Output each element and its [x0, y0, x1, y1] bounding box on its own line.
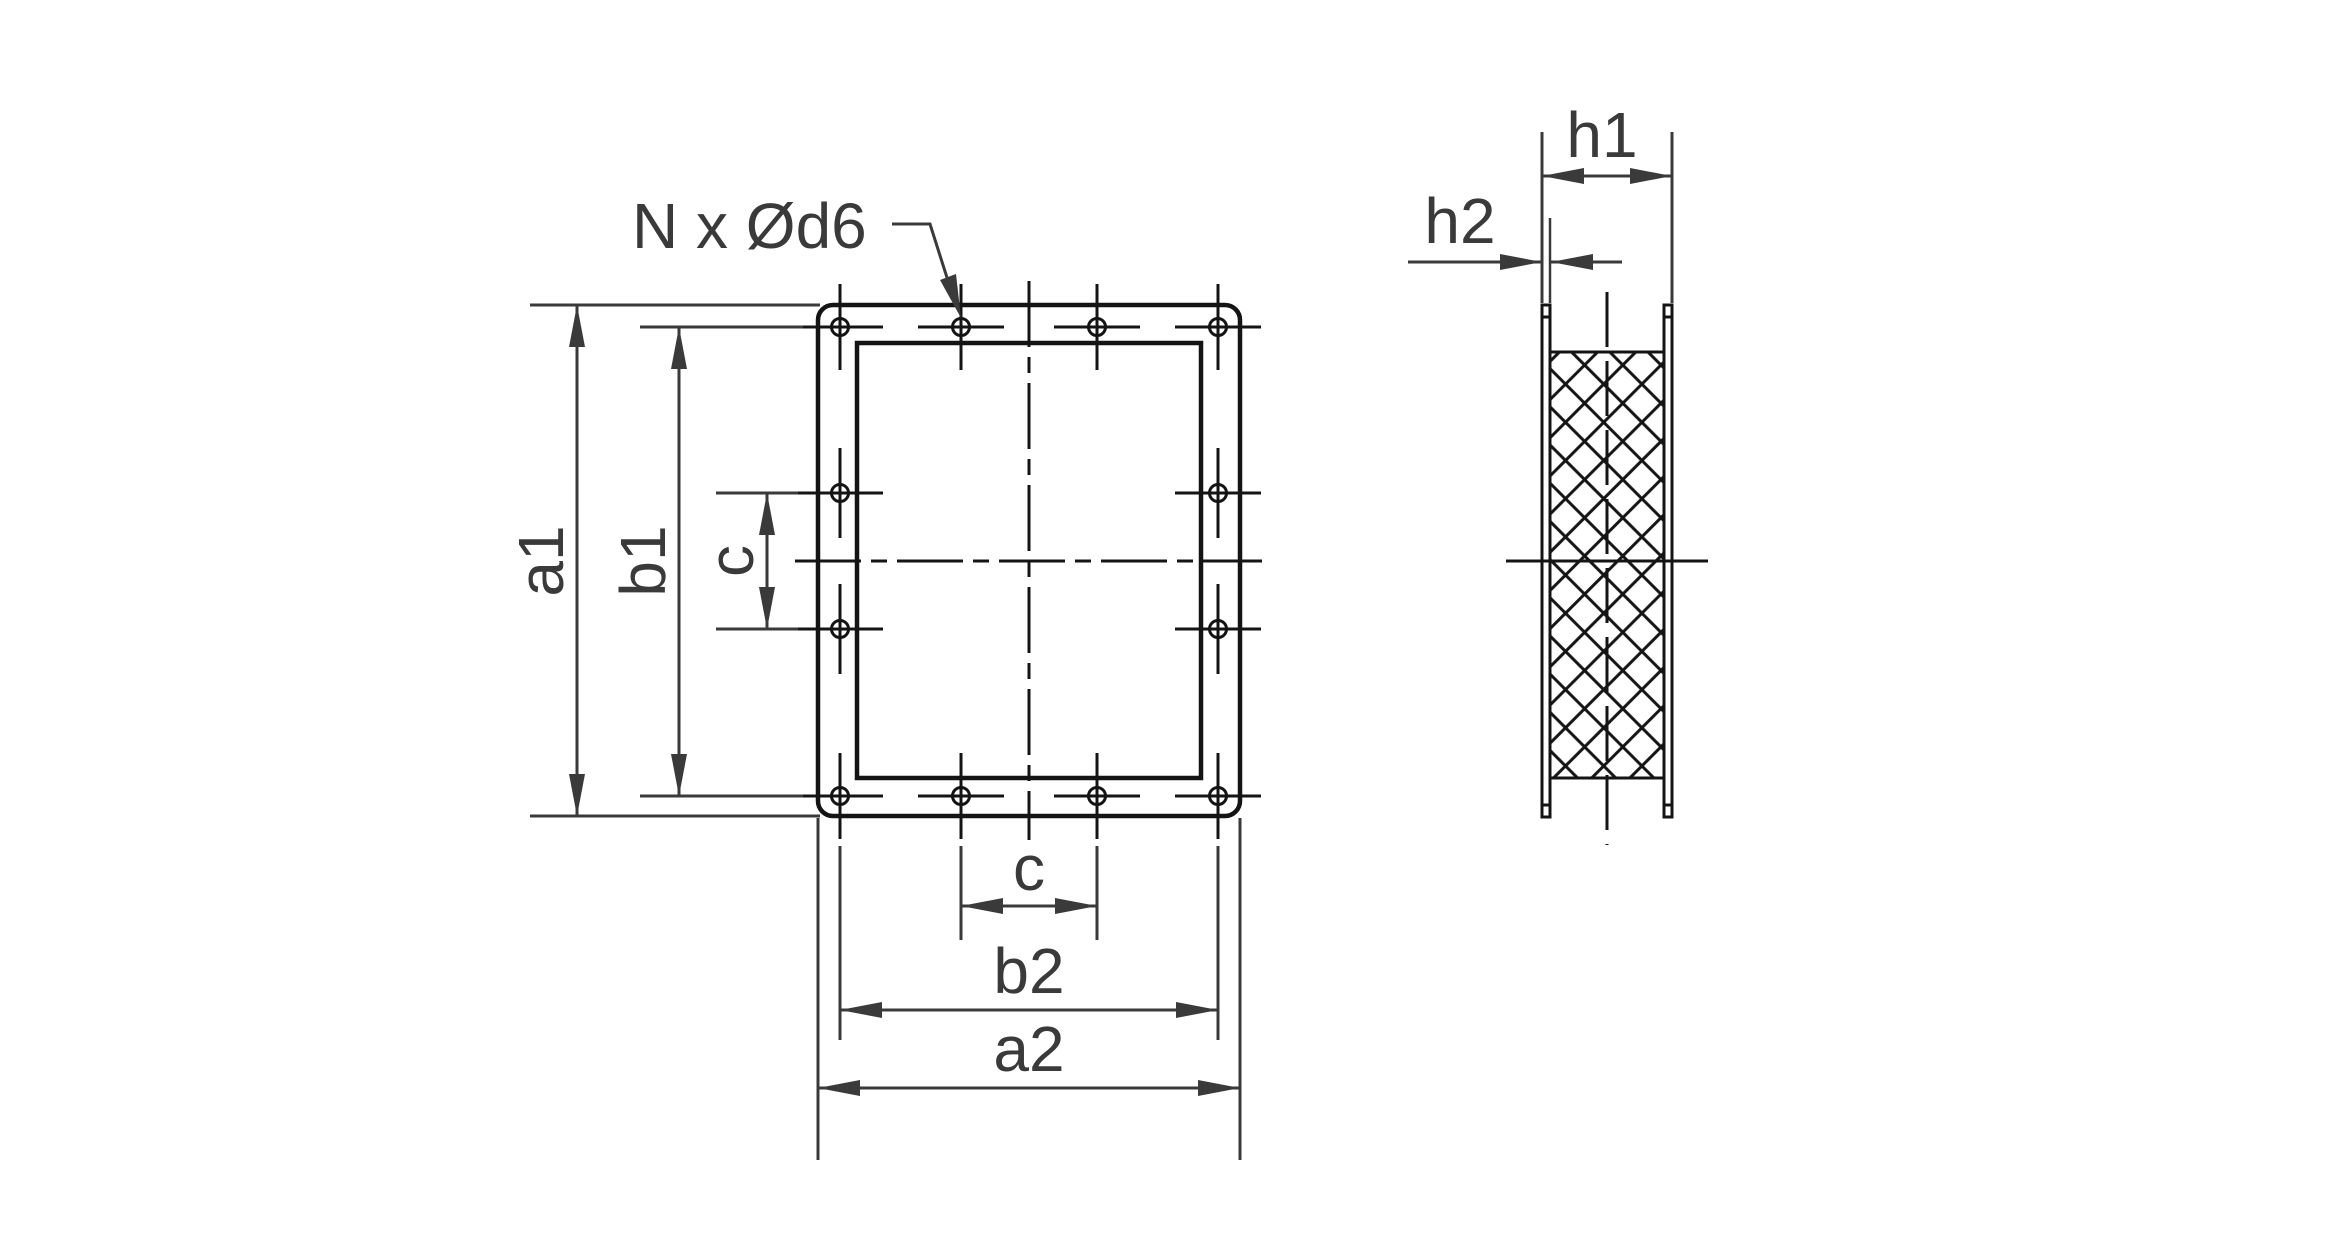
dim-h2-arrow-left — [1500, 254, 1542, 270]
front-view-dimensions: a1 b1 c c b2 a2 — [505, 305, 1240, 1160]
dim-a2-label: a2 — [993, 1013, 1064, 1085]
hole-note-leader-arrowhead — [940, 274, 961, 318]
side-view-dimensions: h1 h2 — [1408, 99, 1672, 303]
drawing-sheet: N x Ød6 a1 b1 c c b2 — [0, 0, 2334, 1234]
dim-b1-label: b1 — [607, 525, 679, 596]
hole-note-leader-line — [892, 224, 956, 306]
dim-b2-arrow-left — [840, 1002, 882, 1018]
dim-h1-label: h1 — [1566, 99, 1637, 171]
hole-note-label: N x Ød6 — [632, 190, 867, 262]
dim-a1-arrow-bottom — [569, 774, 585, 816]
front-view: N x Ød6 — [632, 190, 1262, 840]
dim-b2-arrow-right — [1176, 1002, 1218, 1018]
dim-a2-arrow-left — [818, 1080, 860, 1096]
dim-b1-arrow-top — [671, 327, 687, 369]
dim-a1-label: a1 — [505, 525, 577, 596]
dim-c-horizontal-arrow-left — [961, 898, 1003, 914]
dim-h2-arrow-right — [1551, 254, 1593, 270]
engineering-drawing: N x Ød6 a1 b1 c c b2 — [0, 0, 2334, 1234]
dim-c-horizontal-label: c — [1013, 832, 1045, 904]
dim-b1-arrow-bottom — [671, 754, 687, 796]
dim-b2-label: b2 — [993, 935, 1064, 1007]
dim-h2-label: h2 — [1424, 185, 1495, 257]
dim-c-vertical-arrow-bottom — [759, 587, 775, 629]
dim-c-vertical-label: c — [695, 545, 767, 577]
dim-a1-arrow-top — [569, 305, 585, 347]
dim-c-vertical-arrow-top — [759, 493, 775, 535]
dim-c-horizontal-arrow-right — [1055, 898, 1097, 914]
dim-a2-arrow-right — [1198, 1080, 1240, 1096]
side-section-view — [1506, 292, 1708, 845]
